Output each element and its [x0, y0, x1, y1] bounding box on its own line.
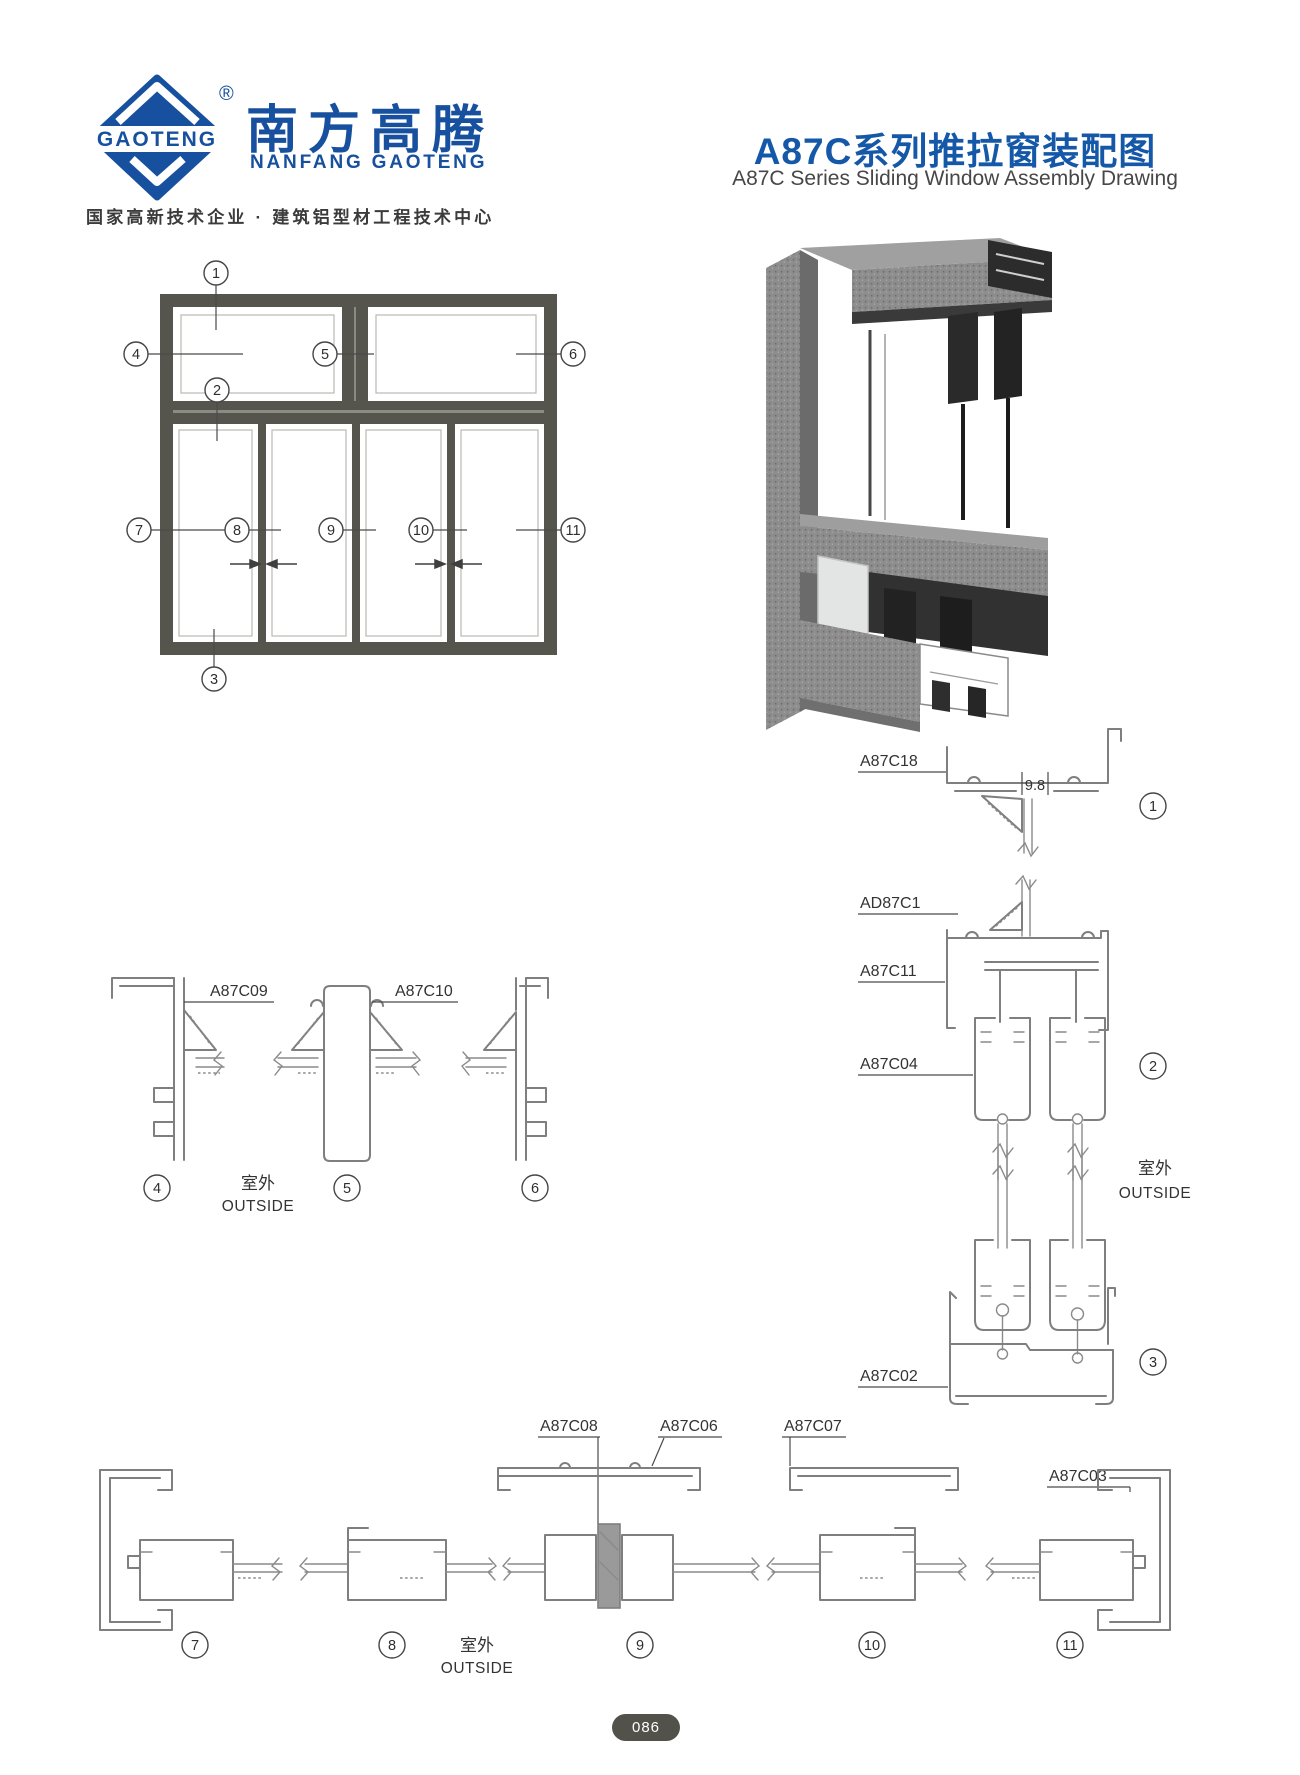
company-logo-icon: GAOTENG ® — [80, 52, 240, 212]
detail-section-4: A87C09 4 — [112, 978, 274, 1201]
label-a87c11: A87C11 — [860, 963, 917, 980]
detail-section-3: A87C02 3 — [858, 1144, 1166, 1404]
label-ad87c1: AD87C1 — [860, 895, 921, 912]
catalog-page: GAOTENG ® 南方高腾 NANFANG GAOTENG 国家高新技术企业 … — [0, 0, 1300, 1775]
detail-section-1: A87C18 9.8 1 — [858, 729, 1166, 856]
callout-6: 6 — [569, 347, 577, 363]
label-a87c08: A87C08 — [540, 1418, 598, 1435]
callout-9: 9 — [327, 523, 335, 539]
detail-8-number: 8 — [388, 1638, 396, 1654]
label-a87c06: A87C06 — [660, 1418, 718, 1435]
callout-10: 10 — [413, 523, 429, 539]
callout-1: 1 — [212, 266, 220, 282]
detail-section-2: AD87C1 A87C11 A87C04 — [858, 876, 1191, 1202]
callout-7: 7 — [135, 523, 143, 539]
detail-2-number: 2 — [1149, 1059, 1157, 1075]
detail-1-number: 1 — [1149, 799, 1157, 815]
window-elevation-diagram: 1 2 3 4 5 6 7 8 9 10 — [120, 248, 590, 700]
outside-label-mid-cn: 室外 — [241, 1174, 275, 1193]
detail-section-5: A87C10 5 — [274, 983, 458, 1201]
outside-label-right-cn: 室外 — [1138, 1159, 1172, 1178]
page-number: 086 — [632, 1719, 660, 1736]
detail-section-6: 6 — [462, 978, 548, 1201]
horizontal-section-details: A87C08 A87C06 A87C07 A87C03 7 8 — [80, 1412, 1220, 1680]
detail-3-number: 3 — [1149, 1355, 1157, 1371]
detail-7-number: 7 — [191, 1638, 199, 1654]
detail-3-sash-right — [1050, 1240, 1105, 1354]
brand-name-en: NANFANG GAOTENG — [250, 152, 487, 174]
detail-9-number: 9 — [636, 1638, 644, 1654]
transom-section-details: A87C09 4 A87C10 5 — [85, 920, 555, 1222]
outside-label-mid-en: OUTSIDE — [222, 1198, 294, 1215]
callout-5: 5 — [321, 347, 329, 363]
elevation-frame — [160, 294, 557, 655]
render-head-rail — [800, 238, 1052, 528]
outside-label-bottom-en: OUTSIDE — [441, 1660, 513, 1677]
detail-section-10: 10 — [767, 1468, 966, 1658]
vertical-section-details: A87C18 9.8 1 AD87C1 A87C11 — [845, 705, 1220, 1445]
outside-label-right-en: OUTSIDE — [1119, 1185, 1191, 1202]
detail-6-number: 6 — [531, 1181, 539, 1197]
detail-2-sash-left — [975, 1018, 1030, 1180]
detail-10-number: 10 — [864, 1638, 880, 1654]
detail-section-7: 7 — [100, 1470, 282, 1658]
detail-section-9: 9 — [498, 1463, 759, 1658]
page-subtitle: A87C Series Sliding Window Assembly Draw… — [630, 167, 1280, 191]
callout-3: 3 — [210, 672, 218, 688]
dimension-9-8: 9.8 — [1025, 778, 1045, 794]
detail-4-number: 4 — [153, 1181, 161, 1197]
label-a87c10: A87C10 — [395, 983, 453, 1000]
label-a87c04: A87C04 — [860, 1056, 918, 1073]
detail-3-sash-left — [975, 1240, 1030, 1350]
logo-text: GAOTENG — [97, 128, 217, 151]
callout-2: 2 — [213, 383, 221, 399]
label-a87c09: A87C09 — [210, 983, 268, 1000]
brand-tagline: 国家高新技术企业 · 建筑铝型材工程技术中心 — [86, 203, 495, 228]
outside-label-bottom-cn: 室外 — [460, 1636, 494, 1655]
callout-11: 11 — [565, 523, 580, 539]
page-number-badge: 086 — [612, 1714, 680, 1741]
profile-3d-render — [752, 224, 1052, 736]
detail-section-11: 11 — [986, 1470, 1170, 1658]
detail-5-number: 5 — [343, 1181, 351, 1197]
registered-mark: ® — [219, 83, 234, 105]
callout-4: 4 — [132, 347, 140, 363]
callout-8: 8 — [233, 523, 241, 539]
label-a87c07: A87C07 — [784, 1418, 842, 1435]
label-a87c18: A87C18 — [860, 753, 918, 770]
detail-9-interlock — [598, 1524, 620, 1608]
detail-11-number: 11 — [1062, 1638, 1077, 1654]
detail-2-sash-right — [1050, 1018, 1105, 1180]
label-a87c02: A87C02 — [860, 1368, 918, 1385]
